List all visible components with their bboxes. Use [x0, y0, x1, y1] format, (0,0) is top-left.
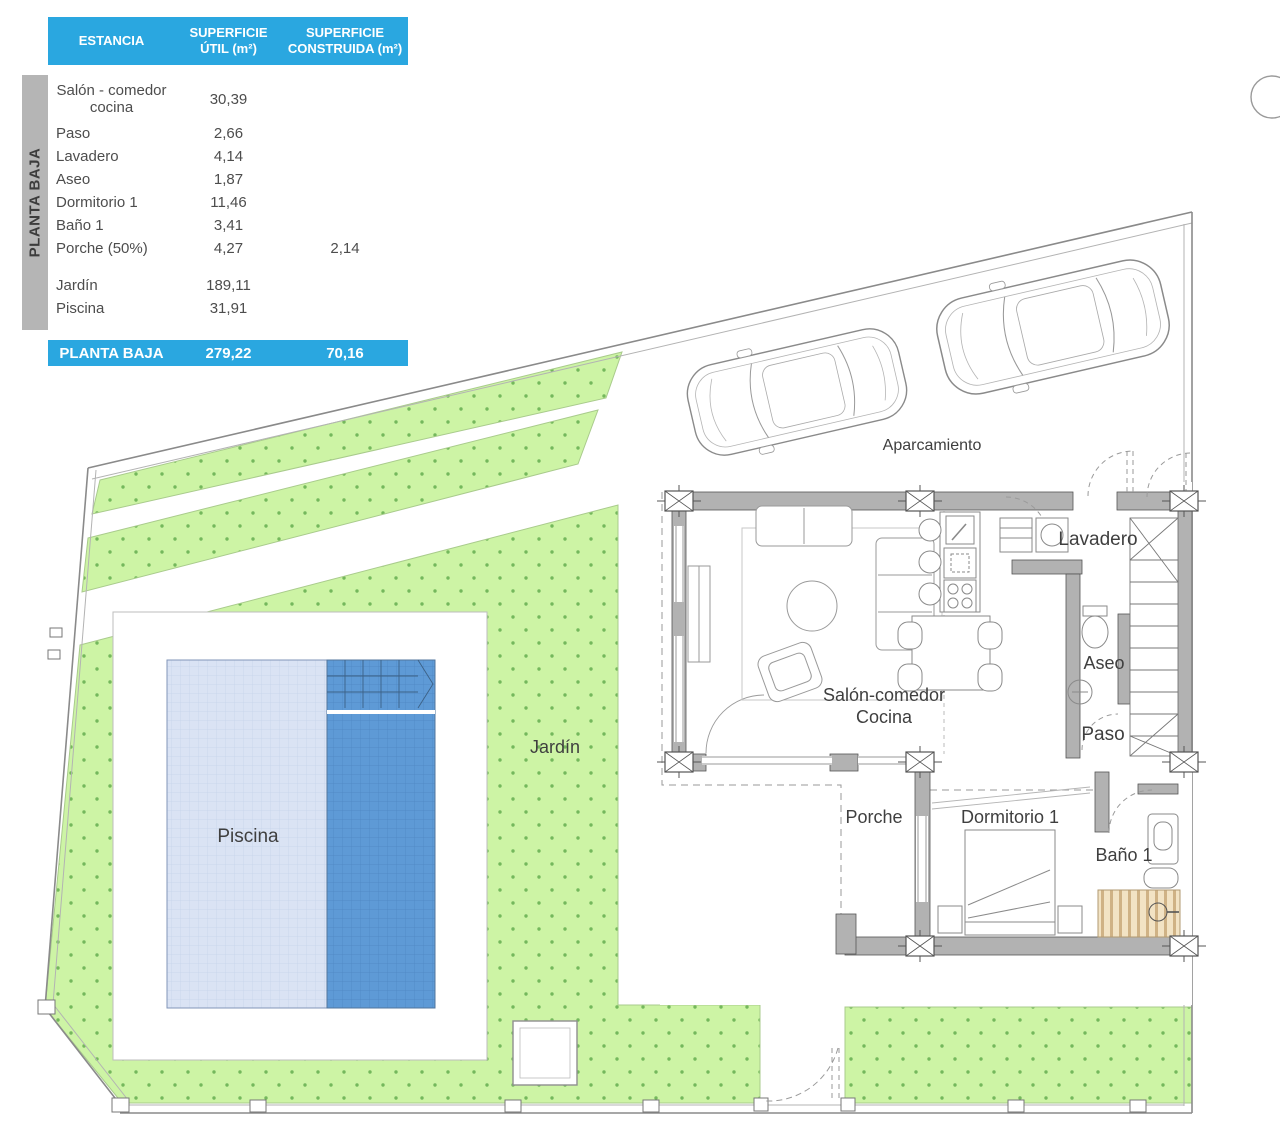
bed: [965, 830, 1055, 935]
table-row: Jardín 189,11: [48, 274, 408, 297]
garden-gate-swing: [766, 1048, 838, 1101]
floor-level-label: PLANTA BAJA: [27, 148, 44, 258]
table-row: Aseo 1,87: [48, 168, 408, 191]
table-body: Salón - comedor cocina 30,39 Paso 2,66 L…: [48, 76, 408, 320]
garden-utility-pad: [513, 1021, 577, 1085]
header-estancia: ESTANCIA: [48, 17, 175, 65]
table-row: Dormitorio 1 11,46: [48, 191, 408, 214]
label-piscina: Piscina: [217, 826, 279, 847]
parking-area: [680, 247, 1177, 468]
table-header: ESTANCIA SUPERFICIEÚTIL (m²) SUPERFICIEC…: [48, 17, 408, 65]
label-aparcamiento: Aparcamiento: [883, 437, 982, 454]
table-row: Salón - comedor cocina 30,39: [48, 76, 408, 122]
table-row: Porche (50%) 4,27 2,14: [48, 237, 408, 260]
label-lavadero: Lavadero: [1058, 529, 1137, 550]
total-built: 70,16: [282, 345, 408, 362]
table-row: Paso 2,66: [48, 122, 408, 145]
total-util: 279,22: [175, 345, 282, 362]
oven: [944, 548, 976, 578]
label-dormitorio: Dormitorio 1: [961, 807, 1059, 827]
table-row: Baño 1 3,41: [48, 214, 408, 237]
staircase: [1130, 518, 1178, 756]
header-superficie-construida: SUPERFICIECONSTRUIDA (m²): [282, 17, 408, 65]
hob: [944, 580, 976, 612]
header-superficie-util: SUPERFICIEÚTIL (m²): [175, 17, 282, 65]
car-left: [680, 316, 914, 468]
garden-strip-bottom-right: [845, 1007, 1192, 1103]
label-jardin: Jardín: [530, 737, 580, 757]
label-paso: Paso: [1081, 724, 1124, 745]
table-total-row: PLANTA BAJA 279,22 70,16: [48, 340, 408, 366]
label-porche: Porche: [845, 807, 902, 827]
table-row: Piscina 31,91: [48, 297, 408, 320]
floor-plan-page: Aparcamiento Lavadero Aseo Paso Salón-co…: [0, 0, 1280, 1142]
label-salon-line2: Cocina: [856, 707, 913, 727]
compass-circle: [1251, 76, 1280, 118]
label-salon-line1: Salón-comedor: [823, 685, 945, 705]
label-aseo: Aseo: [1083, 653, 1124, 673]
car-right: [929, 247, 1177, 408]
label-bano: Baño 1: [1095, 845, 1152, 865]
floor-level-sidebar: PLANTA BAJA: [22, 75, 48, 330]
total-label: PLANTA BAJA: [48, 345, 175, 362]
shower-tray: [1098, 890, 1180, 937]
bathroom-toilet: [1144, 868, 1178, 888]
table-row: Lavadero 4,14: [48, 145, 408, 168]
